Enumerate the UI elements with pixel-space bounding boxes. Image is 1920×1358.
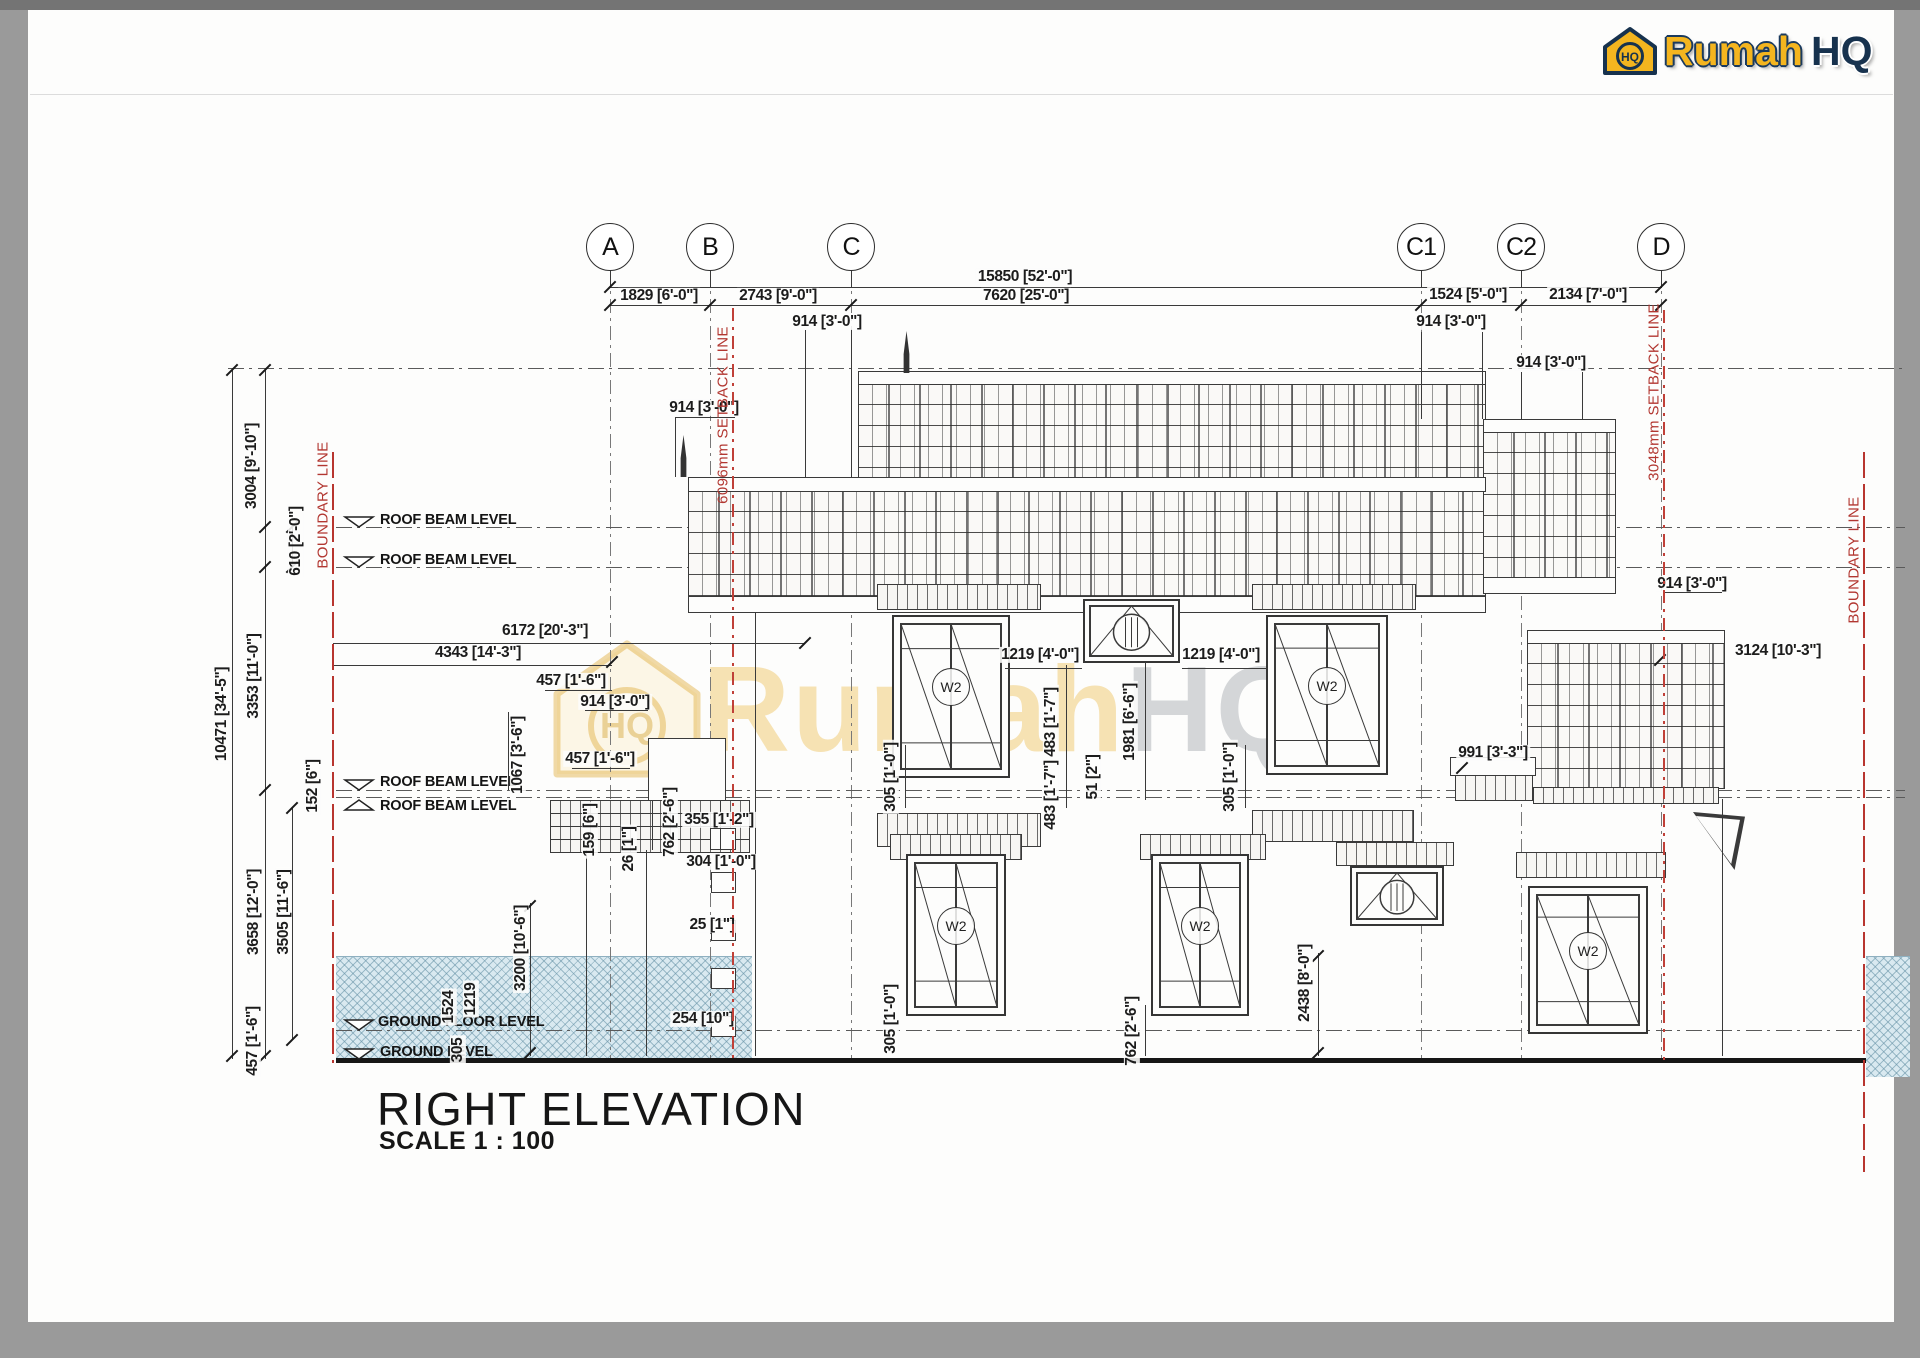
logo-word-hq: HQ	[1811, 28, 1873, 75]
dim-label: 152 [6"]	[305, 757, 321, 814]
dim-label: 304 [1'-0"]	[684, 854, 758, 870]
brick-band	[1455, 775, 1533, 801]
logo: HQ RumahHQ	[1602, 26, 1872, 76]
dim-line-v	[646, 850, 647, 1056]
dim-label: 3124 [10'-3"]	[1733, 643, 1823, 659]
grid-bubble-c1: C1	[1397, 223, 1445, 271]
dim-line-h	[333, 643, 805, 644]
dim-label: 15850 [52'-0"]	[976, 269, 1074, 285]
dim-line-h	[572, 768, 630, 769]
dim-line-v	[292, 808, 293, 1040]
dim-line-v	[1318, 953, 1319, 1056]
boundary-line	[1863, 452, 1865, 1172]
dim-line-h	[333, 665, 612, 666]
window-tag: W2	[937, 907, 975, 945]
dim-label: 914 [3'-0"]	[790, 314, 864, 330]
level-marker-icon	[344, 778, 374, 796]
grid-bubble-stem	[710, 270, 711, 288]
casement-window: W2	[1528, 886, 1648, 1034]
dim-line-v	[905, 745, 906, 808]
grid-bubble-c: C	[827, 223, 875, 271]
grid-bubble-c2: C2	[1497, 223, 1545, 271]
boundary-line	[332, 452, 334, 1063]
window-tag: W2	[1181, 907, 1219, 945]
dim-line-v	[1722, 799, 1723, 1056]
level-label: ROOF BEAM LEVEL	[380, 512, 516, 528]
dim-line-v	[586, 850, 587, 1056]
site-line-label: 3048mm SETBACK LINE	[1646, 303, 1663, 481]
roof-shingles	[1527, 642, 1725, 789]
dim-label: 2743 [9'-0"]	[737, 288, 819, 304]
dim-label: 7620 [25'-0"]	[981, 288, 1071, 304]
site-line-label: BOUNDARY LINE	[315, 441, 332, 568]
roof-finial	[679, 435, 688, 477]
dim-label: 1981 [6'-6"]	[1122, 681, 1138, 763]
fan-window	[1083, 599, 1180, 663]
dim-line-v	[675, 417, 676, 477]
dim-line-v	[755, 612, 756, 1056]
dim-label: 762 [2'-6"]	[1124, 994, 1140, 1068]
roof-ridge-cap	[858, 371, 1486, 385]
roof-ridge-cap	[1483, 577, 1616, 594]
dim-tick	[606, 656, 619, 669]
grid-bubble-stem	[1521, 270, 1522, 288]
brick-band	[877, 584, 1041, 610]
logo-word-rumah: Rumah	[1664, 28, 1803, 75]
dim-label: 1067 [3'-6"]	[510, 714, 526, 796]
roof-finial	[902, 331, 911, 373]
logo-house-icon: HQ	[1602, 26, 1658, 76]
dim-label: 305 [1'-0"]	[883, 982, 899, 1056]
dim-label: 159 [6"]	[582, 801, 598, 858]
level-marker-icon	[344, 1047, 374, 1065]
dim-label: 457 [1'-6"]	[563, 751, 637, 767]
level-label: GROUND FLOOR LEVEL	[378, 1014, 544, 1030]
dim-label: 914 [3'-0"]	[1514, 355, 1588, 371]
casement-window: W2	[892, 615, 1010, 778]
dim-line-v	[1145, 662, 1146, 800]
dim-line-h	[1664, 592, 1722, 593]
dim-line-v	[851, 330, 852, 477]
drawing-scale: SCALE 1 : 100	[379, 1127, 555, 1156]
dim-label: 355 [1'-2"]	[682, 812, 756, 828]
dim-label: 610 [2'-0"]	[288, 504, 304, 578]
dim-label: 4343 [14'-3"]	[433, 645, 523, 661]
dim-line-h	[545, 690, 612, 691]
dim-label: 10471 [34'-5"]	[214, 665, 230, 763]
level-label: ROOF BEAM LEVEL	[380, 774, 516, 790]
casement-window: W2	[906, 854, 1006, 1016]
dim-line-v	[1245, 745, 1246, 808]
dim-label: 305 [1'-0"]	[1222, 740, 1238, 814]
roof-ridge-cap	[648, 738, 726, 802]
level-label: GROUND LEVEL	[380, 1044, 493, 1060]
grid-bubble-d: D	[1637, 223, 1685, 271]
dim-line-v	[1521, 372, 1522, 419]
level-marker-icon	[344, 798, 374, 816]
dim-label: 914 [3'-0"]	[1414, 314, 1488, 330]
dim-label: 483 [1'-7"]	[1043, 758, 1059, 832]
dim-line-v	[805, 330, 806, 477]
level-label: ROOF BEAM LEVEL	[380, 798, 516, 814]
window-tag: W2	[932, 668, 970, 706]
dim-label: 1524	[441, 989, 457, 1026]
dim-label: 762 [2'-6"]	[662, 785, 678, 859]
setback-line	[1663, 310, 1665, 1063]
fan-window	[1350, 866, 1444, 926]
dim-label: 2134 [7'-0"]	[1547, 287, 1629, 303]
level-marker-icon	[344, 515, 374, 533]
dim-line-v	[652, 800, 653, 850]
dim-label: 305 [1'-0"]	[883, 740, 899, 814]
dim-line-v	[1421, 332, 1422, 419]
dim-line-v	[530, 903, 531, 1056]
dim-label: 25 [1"]	[687, 917, 736, 933]
brick-band	[1336, 842, 1454, 866]
dim-line-v	[1066, 665, 1067, 808]
dim-label: 914 [3'-0"]	[578, 694, 652, 710]
dim-label: 3004 [9'-10"]	[244, 421, 260, 511]
dim-label: 51 [2"]	[1085, 752, 1101, 801]
casement-window: W2	[1266, 615, 1388, 775]
site-line-label: BOUNDARY LINE	[1846, 496, 1863, 623]
dim-line-h	[1182, 668, 1268, 669]
dim-label: 1829 [6'-0"]	[618, 288, 700, 304]
logo-monogram: HQ	[1621, 50, 1639, 64]
dim-label: 1219 [4'-0"]	[1180, 647, 1262, 663]
dim-label: 26 [1"]	[621, 824, 637, 873]
dim-label: 3658 [12'-0"]	[246, 867, 262, 957]
dim-label: 3200 [10'-6"]	[513, 903, 529, 993]
dim-label: 914 [3'-0"]	[1655, 576, 1729, 592]
ground-hatch	[1866, 956, 1910, 1077]
roof-shingles	[1483, 431, 1616, 579]
dim-label: 1219 [4'-0"]	[999, 647, 1081, 663]
dim-line-h	[1005, 668, 1082, 669]
roof-shingles	[858, 383, 1486, 480]
elevation-drawing: W2W2W2W2W2ROOF BEAM LEVELROOF BEAM LEVEL…	[0, 0, 1920, 1358]
dim-line-v	[1582, 372, 1583, 419]
grid-bubble-stem	[1421, 270, 1422, 288]
dim-label: 3353 [11'-0"]	[246, 631, 262, 720]
dim-label: 457 [1'-6"]	[245, 1004, 261, 1078]
casement-window: W2	[1151, 854, 1249, 1016]
dim-line-h	[585, 710, 648, 711]
dim-label: 1219	[463, 981, 479, 1018]
brick-band	[1533, 787, 1719, 804]
roof-ridge-cap	[1483, 419, 1616, 433]
roof-ridge-cap	[1527, 630, 1725, 644]
window-tag: W2	[1308, 667, 1346, 705]
level-marker-icon	[344, 555, 374, 573]
level-label: ROOF BEAM LEVEL	[380, 552, 516, 568]
site-line-label: 6096mm SETBACK LINE	[715, 326, 732, 504]
dim-label: 3505 [11'-6"]	[276, 867, 292, 956]
brick-band	[1252, 810, 1414, 842]
dim-label: 991 [3'-3"]	[1456, 745, 1530, 761]
setback-line	[732, 308, 734, 1063]
dim-line-v	[1145, 1005, 1146, 1056]
dim-line-v	[265, 370, 266, 1059]
window-tag: W2	[1569, 932, 1607, 970]
sheet-frame-line	[30, 94, 1893, 95]
level-marker-icon	[344, 1018, 374, 1036]
dim-line-h	[610, 305, 1661, 306]
roof-ridge-cap	[688, 477, 1486, 492]
dim-line-v	[232, 370, 233, 1059]
dim-label: 2438 [8'-0"]	[1297, 942, 1313, 1024]
dim-label: 254 [10"]	[670, 1011, 735, 1027]
roof-shingles	[688, 490, 1486, 598]
brick-band	[1516, 852, 1666, 878]
grid-bubble-stem	[851, 270, 852, 288]
dim-label: 483 [1'-7"]	[1043, 685, 1059, 759]
brick-band	[1252, 584, 1416, 610]
grid-bubble-b: B	[686, 223, 734, 271]
dim-line-v	[1482, 332, 1483, 419]
dim-label: 457 [1'-6"]	[534, 673, 608, 689]
dim-label: 1524 [5'-0"]	[1427, 287, 1509, 303]
ground-line	[336, 1058, 1866, 1063]
dim-label: 305	[450, 1036, 466, 1065]
grid-bubble-a: A	[586, 223, 634, 271]
dim-label: 6172 [20'-3"]	[500, 623, 590, 639]
